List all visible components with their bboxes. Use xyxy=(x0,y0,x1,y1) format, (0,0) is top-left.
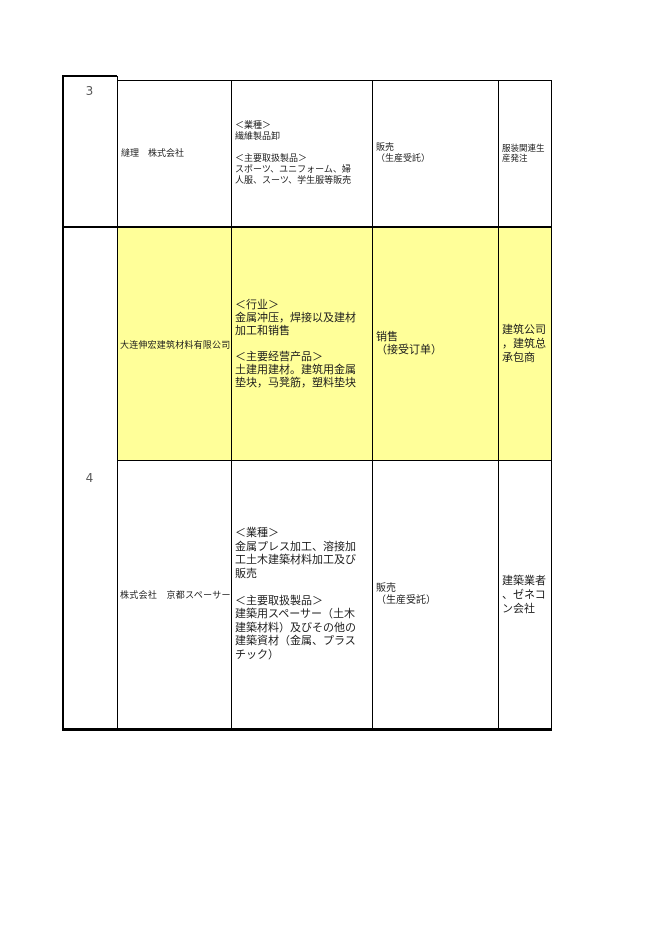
note-text: 建筑公司 ，建筑总 承包商 xyxy=(502,323,546,365)
company-cell-row4-highlighted: 大连伸宏建筑材料有限公司 xyxy=(118,228,231,460)
grid-vline-col4-right xyxy=(498,80,499,731)
grid-hline-bottom-thick xyxy=(62,728,552,731)
note-text: 建築業者 、ゼネコ ン会社 xyxy=(502,574,546,616)
grid-vline-col2-right xyxy=(231,80,232,731)
company-cell-row3: 縫理 株式会社 xyxy=(119,80,231,226)
business-cell-row4-highlighted: ＜行业＞ 金属冲压，焊接以及建材 加工和销售 ＜主要经营产品＞ 土建用建材。建筑… xyxy=(233,228,372,460)
grid-vline-col3-right xyxy=(372,80,373,731)
company-name: 株式会社 京都スペーサー xyxy=(120,588,231,601)
business-description: ＜業種＞ 繊維製品卸 ＜主要取扱製品＞ スポーツ、ユニフォーム、婦 人服、スーツ… xyxy=(235,120,351,186)
row-number-4: 4 xyxy=(86,471,94,485)
sales-mode: 販売 （生産受託） xyxy=(376,142,430,164)
note-cell-row4-lower: 建築業者 、ゼネコ ン会社 xyxy=(500,461,551,728)
sales-mode: 销售 （接受订单） xyxy=(376,331,442,357)
row-number-3: 3 xyxy=(86,84,94,98)
sales-cell-row4-highlighted: 销售 （接受订单） xyxy=(374,228,496,460)
sales-cell-row3: 販売 （生産受託） xyxy=(374,80,496,226)
company-name: 縫理 株式会社 xyxy=(121,148,184,159)
sales-mode: 販売 （生産受託） xyxy=(376,583,436,607)
company-cell-row4-lower: 株式会社 京都スペーサー xyxy=(118,461,231,728)
note-text: 服装関連生 産発注 xyxy=(502,143,545,164)
grid-hline-top-col1-thick xyxy=(62,75,117,77)
row-number-cell-3: 3 xyxy=(62,84,117,114)
business-cell-row4-lower: ＜業種＞ 金属プレス加工、溶接加 工土木建築材料加工及び 販売 ＜主要取扱製品＞… xyxy=(233,461,372,728)
row-number-cell-4: 4 xyxy=(62,228,117,728)
note-cell-row3: 服装関連生 産発注 xyxy=(500,80,551,226)
note-cell-row4-highlighted: 建筑公司 ，建筑总 承包商 xyxy=(500,228,551,460)
sales-cell-row4-lower: 販売 （生産受託） xyxy=(374,461,496,728)
business-description: ＜業種＞ 金属プレス加工、溶接加 工土木建築材料加工及び 販売 ＜主要取扱製品＞… xyxy=(235,527,356,662)
business-cell-row3: ＜業種＞ 繊維製品卸 ＜主要取扱製品＞ スポーツ、ユニフォーム、婦 人服、スーツ… xyxy=(233,80,371,226)
business-description: ＜行业＞ 金属冲压，焊接以及建材 加工和销售 ＜主要经营产品＞ 土建用建材。建筑… xyxy=(235,299,356,390)
grid-vline-right-outer xyxy=(551,80,552,731)
company-name: 大连伸宏建筑材料有限公司 xyxy=(120,338,230,351)
spreadsheet-page: { "document": { "kind": "company-list-ta… xyxy=(0,0,662,936)
